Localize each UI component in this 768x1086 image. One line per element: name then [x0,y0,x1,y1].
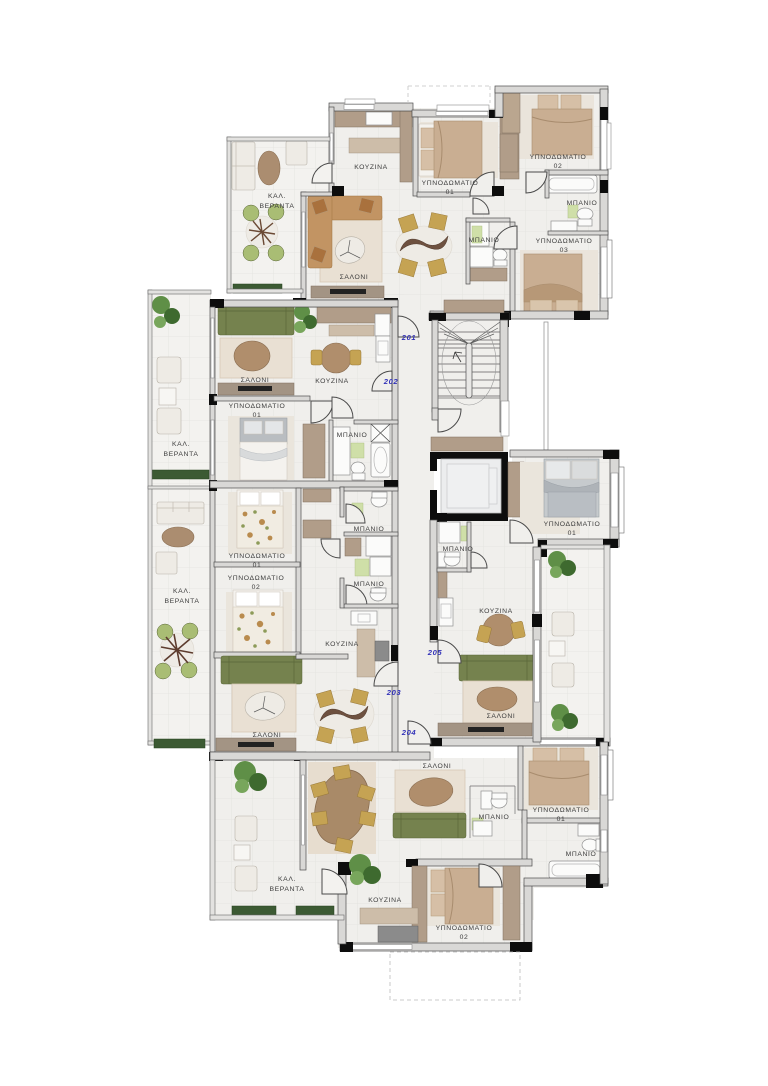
svg-text:02: 02 [460,934,469,941]
svg-text:202: 202 [383,377,399,386]
svg-text:203: 203 [386,688,402,697]
svg-text:ΚΑΛ.: ΚΑΛ. [268,193,286,200]
svg-text:ΒΕΡΑΝΤΑ: ΒΕΡΑΝΤΑ [164,451,199,458]
svg-text:ΚΟΥΖΙΝΑ: ΚΟΥΖΙΝΑ [368,897,402,904]
svg-text:01: 01 [568,530,577,537]
svg-text:ΥΠΝΟΔΩΜΑΤΙΟ: ΥΠΝΟΔΩΜΑΤΙΟ [536,238,593,245]
svg-text:ΜΠΑΝΙΟ: ΜΠΑΝΙΟ [469,237,500,244]
svg-text:ΥΠΝΟΔΩΜΑΤΙΟ: ΥΠΝΟΔΩΜΑΤΙΟ [530,154,587,161]
svg-text:ΜΠΑΝΙΟ: ΜΠΑΝΙΟ [479,814,510,821]
svg-text:ΚΟΥΖΙΝΑ: ΚΟΥΖΙΝΑ [354,164,388,171]
svg-text:ΒΕΡΑΝΤΑ: ΒΕΡΑΝΤΑ [270,886,305,893]
svg-text:ΣΑΛΟΝΙ: ΣΑΛΟΝΙ [253,732,282,739]
svg-text:ΥΠΝΟΔΩΜΑΤΙΟ: ΥΠΝΟΔΩΜΑΤΙΟ [533,807,590,814]
svg-text:ΥΠΝΟΔΩΜΑΤΙΟ: ΥΠΝΟΔΩΜΑΤΙΟ [229,553,286,560]
svg-text:ΥΠΝΟΔΩΜΑΤΙΟ: ΥΠΝΟΔΩΜΑΤΙΟ [544,521,601,528]
svg-text:205: 205 [427,648,443,657]
svg-text:01: 01 [446,189,455,196]
svg-text:ΒΕΡΑΝΤΑ: ΒΕΡΑΝΤΑ [260,203,295,210]
svg-text:ΜΠΑΝΙΟ: ΜΠΑΝΙΟ [354,581,385,588]
svg-text:ΜΠΑΝΙΟ: ΜΠΑΝΙΟ [337,432,368,439]
svg-text:ΚΟΥΖΙΝΑ: ΚΟΥΖΙΝΑ [479,608,513,615]
svg-text:ΚΟΥΖΙΝΑ: ΚΟΥΖΙΝΑ [325,641,359,648]
svg-text:ΜΠΑΝΙΟ: ΜΠΑΝΙΟ [354,526,385,533]
svg-text:204: 204 [401,728,417,737]
svg-text:ΥΠΝΟΔΩΜΑΤΙΟ: ΥΠΝΟΔΩΜΑΤΙΟ [228,575,285,582]
svg-text:ΥΠΝΟΔΩΜΑΤΙΟ: ΥΠΝΟΔΩΜΑΤΙΟ [229,403,286,410]
svg-text:201: 201 [401,333,416,342]
svg-text:02: 02 [554,163,563,170]
svg-text:ΣΑΛΟΝΙ: ΣΑΛΟΝΙ [340,274,369,281]
svg-text:02: 02 [252,584,261,591]
svg-text:01: 01 [557,816,566,823]
svg-text:ΣΑΛΟΝΙ: ΣΑΛΟΝΙ [487,713,516,720]
svg-text:ΜΠΑΝΙΟ: ΜΠΑΝΙΟ [443,546,474,553]
svg-text:ΥΠΝΟΔΩΜΑΤΙΟ: ΥΠΝΟΔΩΜΑΤΙΟ [422,180,479,187]
svg-text:ΚΟΥΖΙΝΑ: ΚΟΥΖΙΝΑ [315,378,349,385]
svg-text:01: 01 [253,412,262,419]
svg-text:03: 03 [560,247,569,254]
svg-text:ΚΑΛ.: ΚΑΛ. [278,876,296,883]
svg-text:ΜΠΑΝΙΟ: ΜΠΑΝΙΟ [566,851,597,858]
svg-text:ΚΑΛ.: ΚΑΛ. [173,588,191,595]
svg-text:ΣΑΛΟΝΙ: ΣΑΛΟΝΙ [241,377,270,384]
svg-text:ΒΕΡΑΝΤΑ: ΒΕΡΑΝΤΑ [165,598,200,605]
svg-text:01: 01 [253,562,262,569]
svg-text:ΜΠΑΝΙΟ: ΜΠΑΝΙΟ [567,200,598,207]
svg-text:ΚΑΛ.: ΚΑΛ. [172,441,190,448]
svg-text:ΣΑΛΟΝΙ: ΣΑΛΟΝΙ [423,763,452,770]
svg-text:ΥΠΝΟΔΩΜΑΤΙΟ: ΥΠΝΟΔΩΜΑΤΙΟ [436,925,493,932]
